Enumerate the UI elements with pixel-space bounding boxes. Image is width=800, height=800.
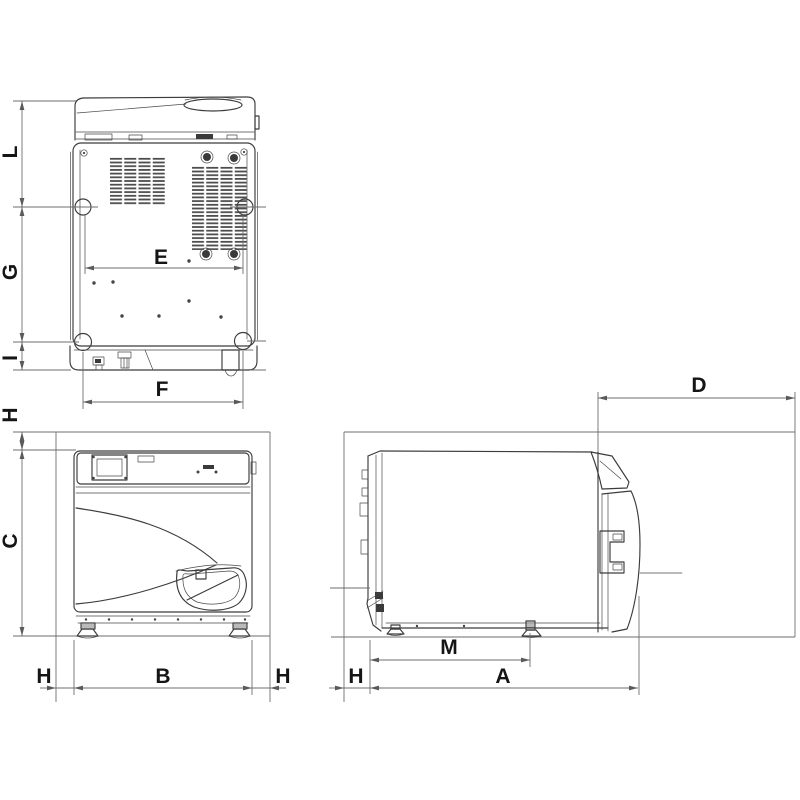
front-foot-right — [229, 623, 250, 638]
side-foot-rear — [387, 625, 404, 636]
drain-valve — [118, 352, 131, 358]
dim-label-G: G — [0, 264, 22, 280]
dim-label-M: M — [440, 636, 458, 659]
vent-grille-right — [192, 166, 248, 250]
front-clearance-box — [13, 432, 270, 702]
control-panel — [77, 453, 249, 484]
dim-label-F: F — [156, 378, 169, 401]
door — [76, 508, 217, 604]
door-handle — [176, 565, 246, 610]
dim-label-E: E — [154, 246, 168, 269]
side-clearance-box — [331, 432, 795, 702]
side-door — [591, 452, 640, 632]
back-view-skirt — [70, 346, 257, 376]
dim-label-C: C — [0, 533, 22, 548]
dimension-drawing-page: L G I E F — [0, 0, 800, 800]
rear-connectors — [360, 470, 384, 612]
side-foot-front — [522, 621, 541, 638]
dim-label-H-left: H — [36, 665, 51, 688]
panel-button — [203, 465, 214, 469]
side-view: D M A H — [329, 374, 795, 702]
front-base — [76, 616, 250, 623]
power-inlet — [222, 350, 239, 370]
lid-latch — [255, 116, 259, 129]
dim-label-I: I — [0, 355, 22, 361]
front-view-body — [74, 451, 256, 638]
side-view-dimensions: D M A H — [329, 374, 795, 695]
panel-slot — [138, 456, 154, 462]
front-view: H C H B H — [0, 407, 291, 702]
dim-label-A: A — [495, 665, 510, 688]
back-view-lid — [75, 97, 259, 140]
dim-label-H-top: H — [0, 407, 22, 422]
lid-handle-recess — [184, 99, 242, 111]
technical-drawing: L G I E F — [0, 0, 800, 800]
back-view: L G I E F — [0, 97, 266, 409]
dim-label-D: D — [691, 374, 706, 397]
dim-label-B: B — [155, 665, 170, 688]
back-view-dimensions: L G I E F — [0, 101, 266, 409]
dim-label-L: L — [0, 145, 22, 158]
vent-grille-left — [110, 157, 166, 205]
front-foot-left — [77, 623, 98, 638]
dim-label-H-right: H — [275, 665, 290, 688]
dim-label-H-back: H — [348, 665, 363, 688]
door-lock-bracket — [600, 531, 624, 573]
side-view-body — [330, 451, 682, 638]
